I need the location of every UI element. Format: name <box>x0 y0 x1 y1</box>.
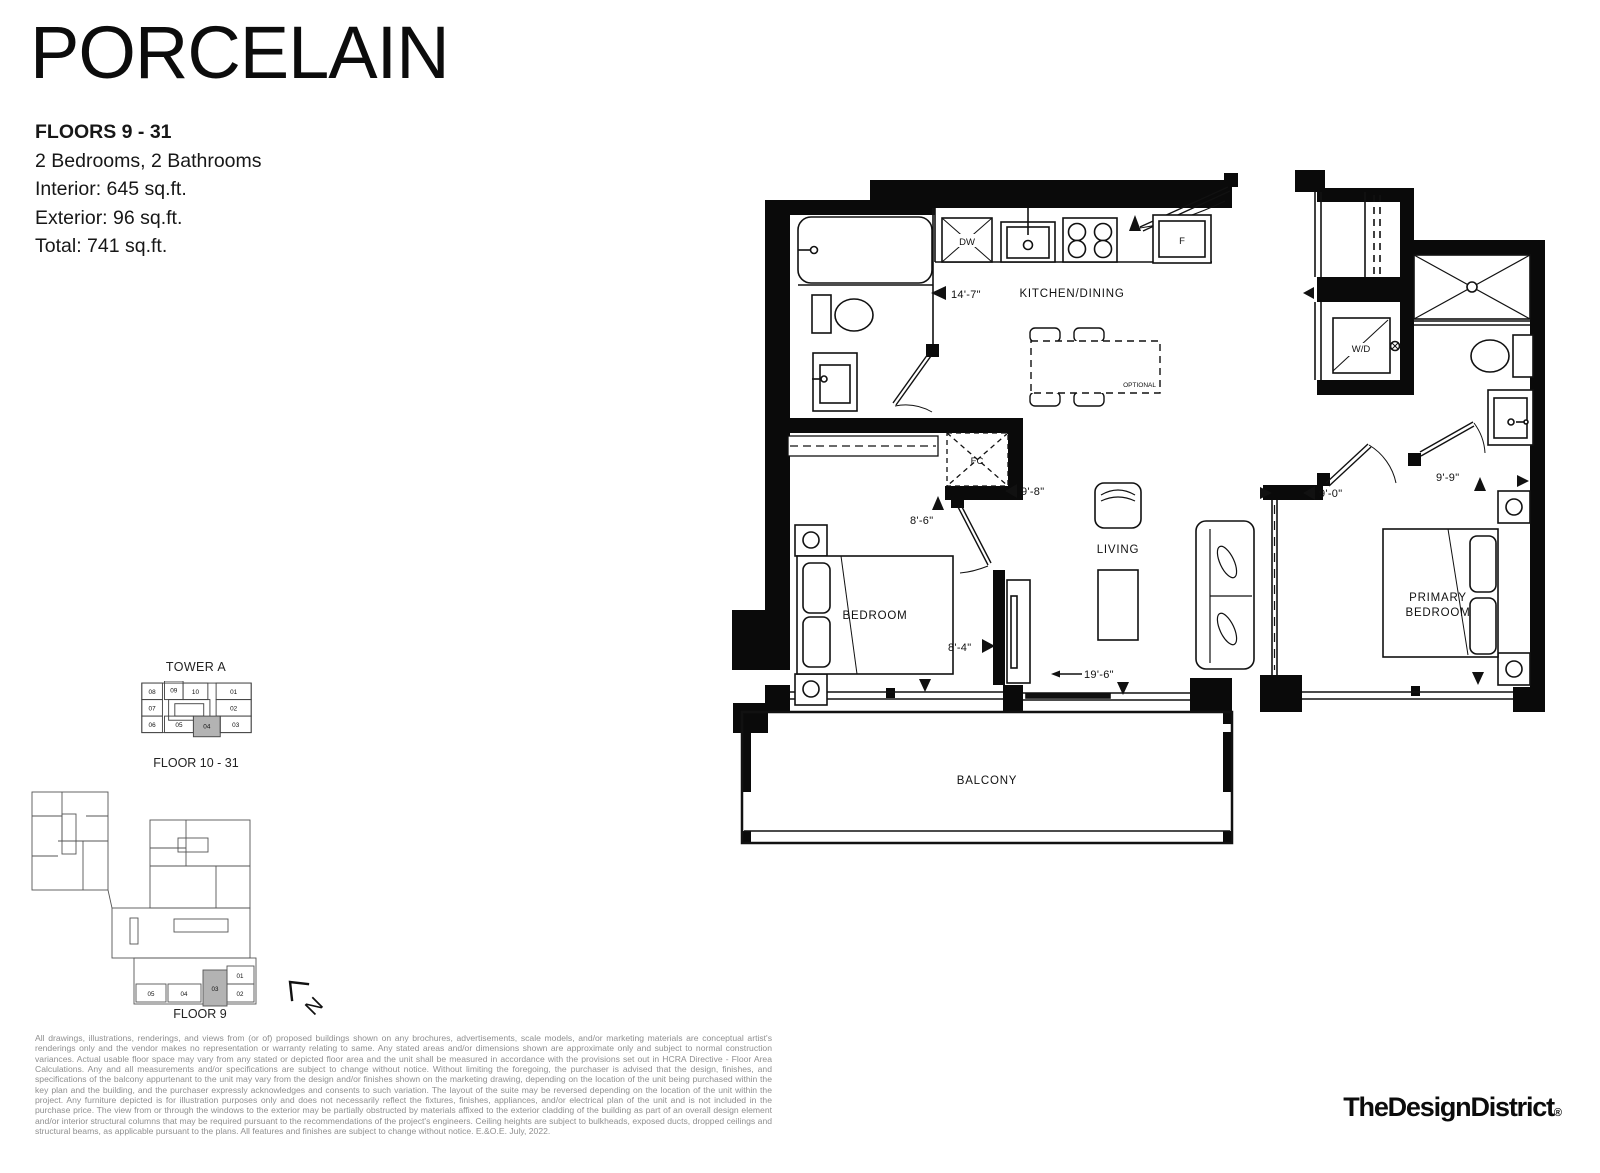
unit-05: 05 <box>175 722 183 729</box>
dim-8-6: 8'-6" <box>910 515 933 527</box>
kitchen-fixtures <box>942 208 1211 263</box>
label-bedroom: BEDROOM <box>842 610 907 622</box>
dining-set <box>1030 328 1160 406</box>
label-fridge: F <box>1179 236 1185 247</box>
unit-02: 02 <box>237 991 244 998</box>
dim-9-9: 9'-9" <box>1436 472 1459 484</box>
unit-06: 06 <box>148 722 156 729</box>
dim-8-4: 8'-4" <box>948 642 971 654</box>
floorplan-page: PORCELAIN FLOORS 9 - 31 2 Bedrooms, 2 Ba… <box>0 0 1600 1173</box>
brand-logo: TheDesignDistrict® <box>1343 1092 1562 1123</box>
sofa <box>1196 521 1254 669</box>
interior-area: Interior: 645 sq.ft. <box>35 175 262 204</box>
tower-a-keyplan-drawing: 08 09 10 01 07 02 06 05 04 03 <box>139 681 254 745</box>
page-title: PORCELAIN <box>30 10 449 95</box>
living-furniture <box>1095 483 1254 669</box>
floors-range: FLOORS 9 - 31 <box>35 118 262 147</box>
floor-9-keyplan-drawing: 01 02 03 04 05 <box>28 786 263 1008</box>
brand-name: TheDesignDistrict <box>1343 1092 1554 1122</box>
unit-07: 07 <box>148 705 156 712</box>
label-primary-line2: BEDROOM <box>1405 607 1470 619</box>
label-kitchen-dining: KITCHEN/DINING <box>1019 288 1124 300</box>
keyplan-floor-9: 01 02 03 04 05 <box>28 786 263 1013</box>
floor-plan: KITCHEN/DINING LIVING BEDROOM PRIMARY BE… <box>720 155 1580 865</box>
dim-9-0: 9'-0" <box>1319 488 1342 500</box>
ensuite-fixtures <box>1414 255 1533 445</box>
north-arrow-letter: N <box>301 993 328 1020</box>
label-fc: FC <box>971 456 984 467</box>
unit-01: 01 <box>237 973 244 980</box>
suite-details: FLOORS 9 - 31 2 Bedrooms, 2 Bathrooms In… <box>35 118 262 261</box>
registered-mark: ® <box>1554 1107 1562 1119</box>
keyplan-tower-a: TOWER A 08 09 10 01 <box>136 660 256 770</box>
toilet-bowl <box>1471 340 1509 372</box>
label-balcony: BALCONY <box>957 775 1018 787</box>
unit-04-highlighted: 04 <box>203 723 211 730</box>
label-wd: W/D <box>1352 344 1371 355</box>
label-primary-line1: PRIMARY <box>1409 592 1467 604</box>
unit-04: 04 <box>181 991 188 998</box>
unit-01: 01 <box>230 689 238 696</box>
range-marker <box>1129 215 1141 231</box>
north-arrow-chevron <box>282 974 310 1002</box>
unit-05: 05 <box>148 991 155 998</box>
dim-19-6: 19'-6" <box>1084 669 1114 681</box>
total-area: Total: 741 sq.ft. <box>35 232 262 261</box>
unit-08: 08 <box>148 689 156 696</box>
coffee-table <box>1098 570 1138 640</box>
label-living: LIVING <box>1097 544 1140 556</box>
tower-a-title: TOWER A <box>136 660 256 674</box>
bed-bath-count: 2 Bedrooms, 2 Bathrooms <box>35 147 262 176</box>
floor-9-label: FLOOR 9 <box>130 1007 270 1021</box>
unit-03: 03 <box>232 722 240 729</box>
unit-10: 10 <box>191 689 199 696</box>
dim-9-8: 9'-8" <box>1021 486 1044 498</box>
unit-03-highlighted: 03 <box>212 986 219 993</box>
primary-bedroom-furniture <box>1383 491 1530 685</box>
label-dw: DW <box>959 237 975 248</box>
tower-a-floors-label: FLOOR 10 - 31 <box>136 756 256 770</box>
unit-02: 02 <box>230 705 238 712</box>
toilet-tank <box>812 295 831 333</box>
north-arrow: N <box>276 960 338 1038</box>
dim-14-7: 14'-7" <box>951 289 981 301</box>
legal-disclaimer: All drawings, illustrations, renderings,… <box>35 1033 772 1136</box>
exterior-area: Exterior: 96 sq.ft. <box>35 204 262 233</box>
toilet-bowl <box>835 299 873 331</box>
label-optional: OPTIONAL <box>1123 382 1156 389</box>
unit-09: 09 <box>170 687 178 694</box>
toilet-tank <box>1513 335 1533 377</box>
